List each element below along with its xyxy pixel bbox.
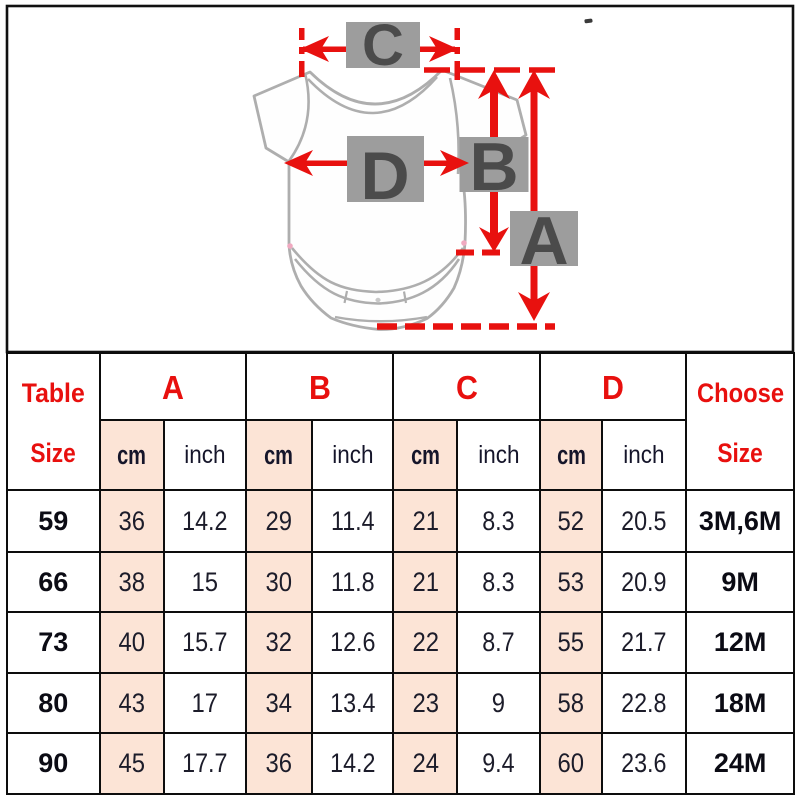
svg-text:A: A bbox=[519, 203, 568, 279]
svg-text:D: D bbox=[360, 138, 409, 214]
svg-text:C: C bbox=[362, 13, 404, 78]
svg-text:B: B bbox=[469, 129, 518, 205]
